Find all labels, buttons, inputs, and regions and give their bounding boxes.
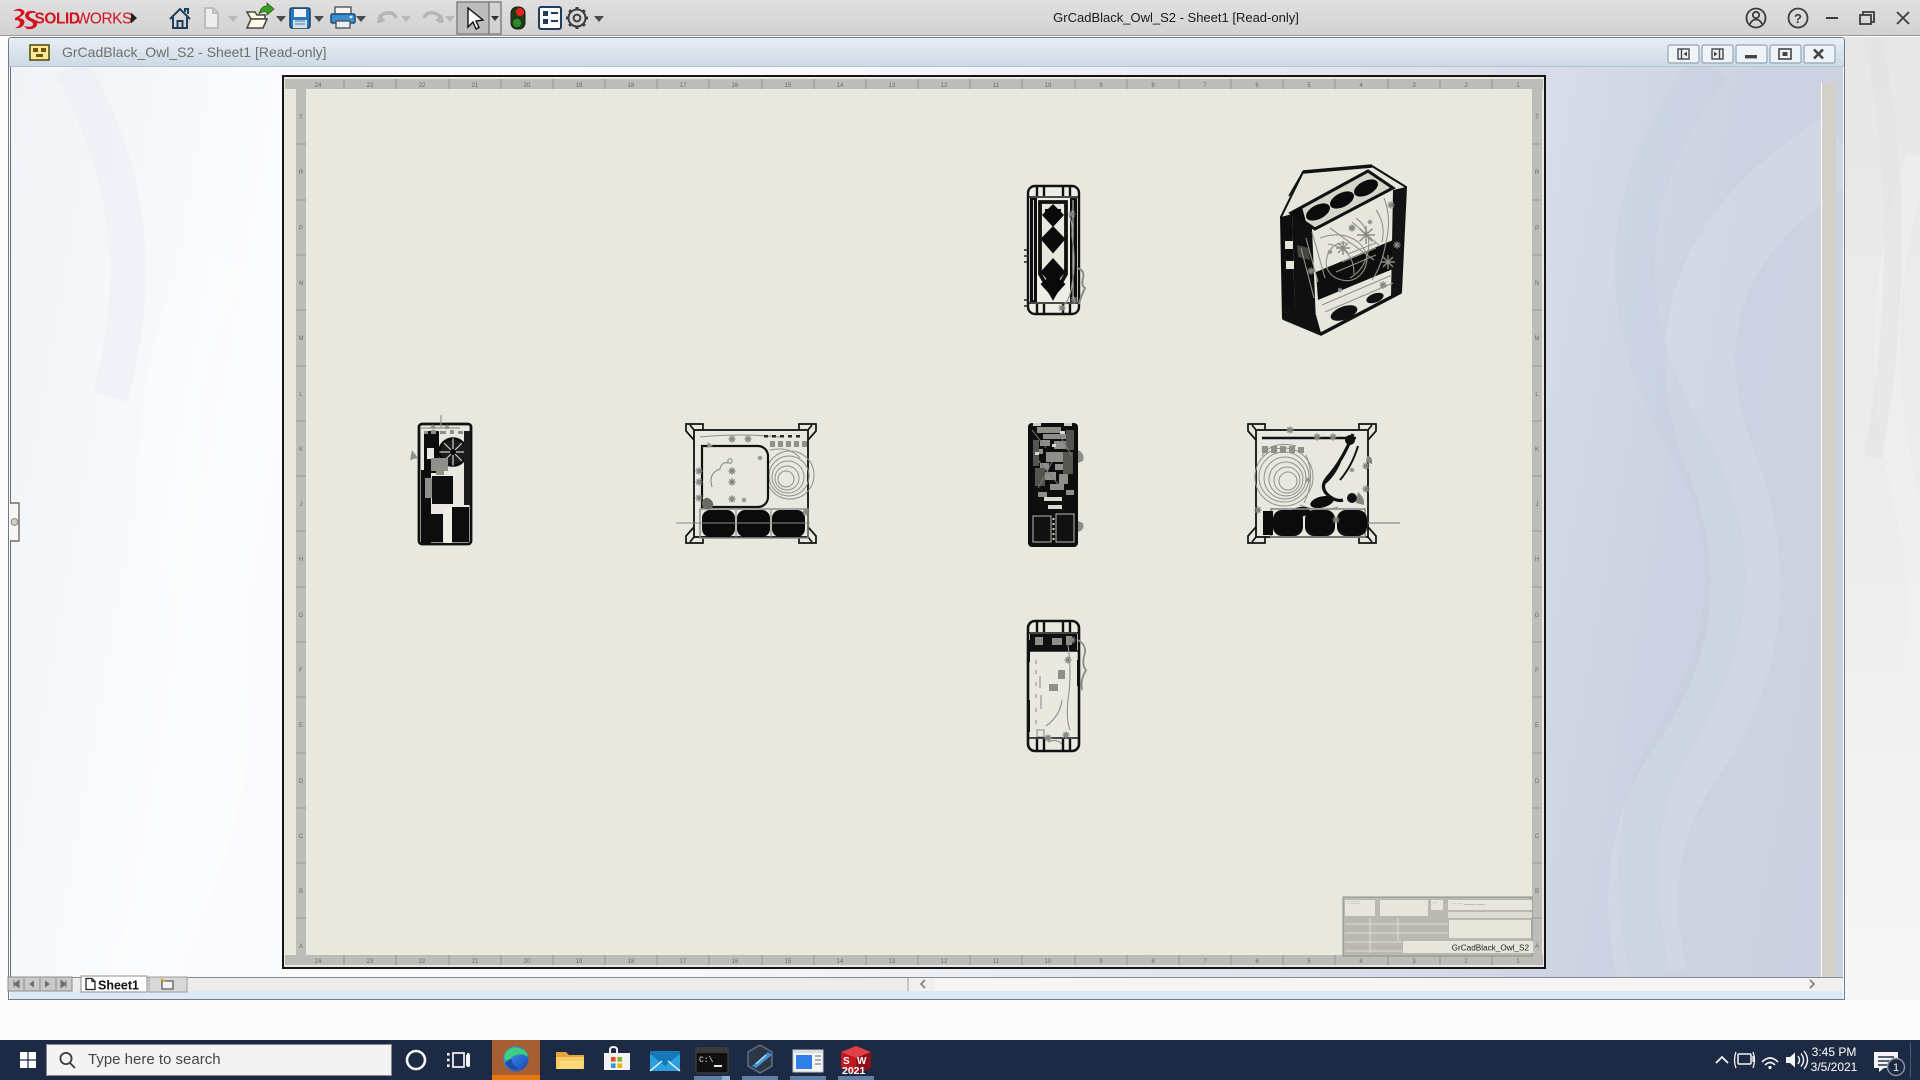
svg-text::·:: :·: (1433, 900, 1437, 905)
svg-text:2021: 2021 (842, 1065, 866, 1077)
svg-text:1: 1 (1893, 1062, 1899, 1074)
svg-text:GrCadBlack_Owl_S2: GrCadBlack_Owl_S2 (1452, 944, 1530, 953)
svg-text:C:\: C:\ (699, 1056, 714, 1065)
svg-text:··· ···· ——— ——: ··· ···· ——— —— (1452, 901, 1485, 906)
svg-text:: :::::::::: : ::::::::: (1348, 900, 1360, 905)
